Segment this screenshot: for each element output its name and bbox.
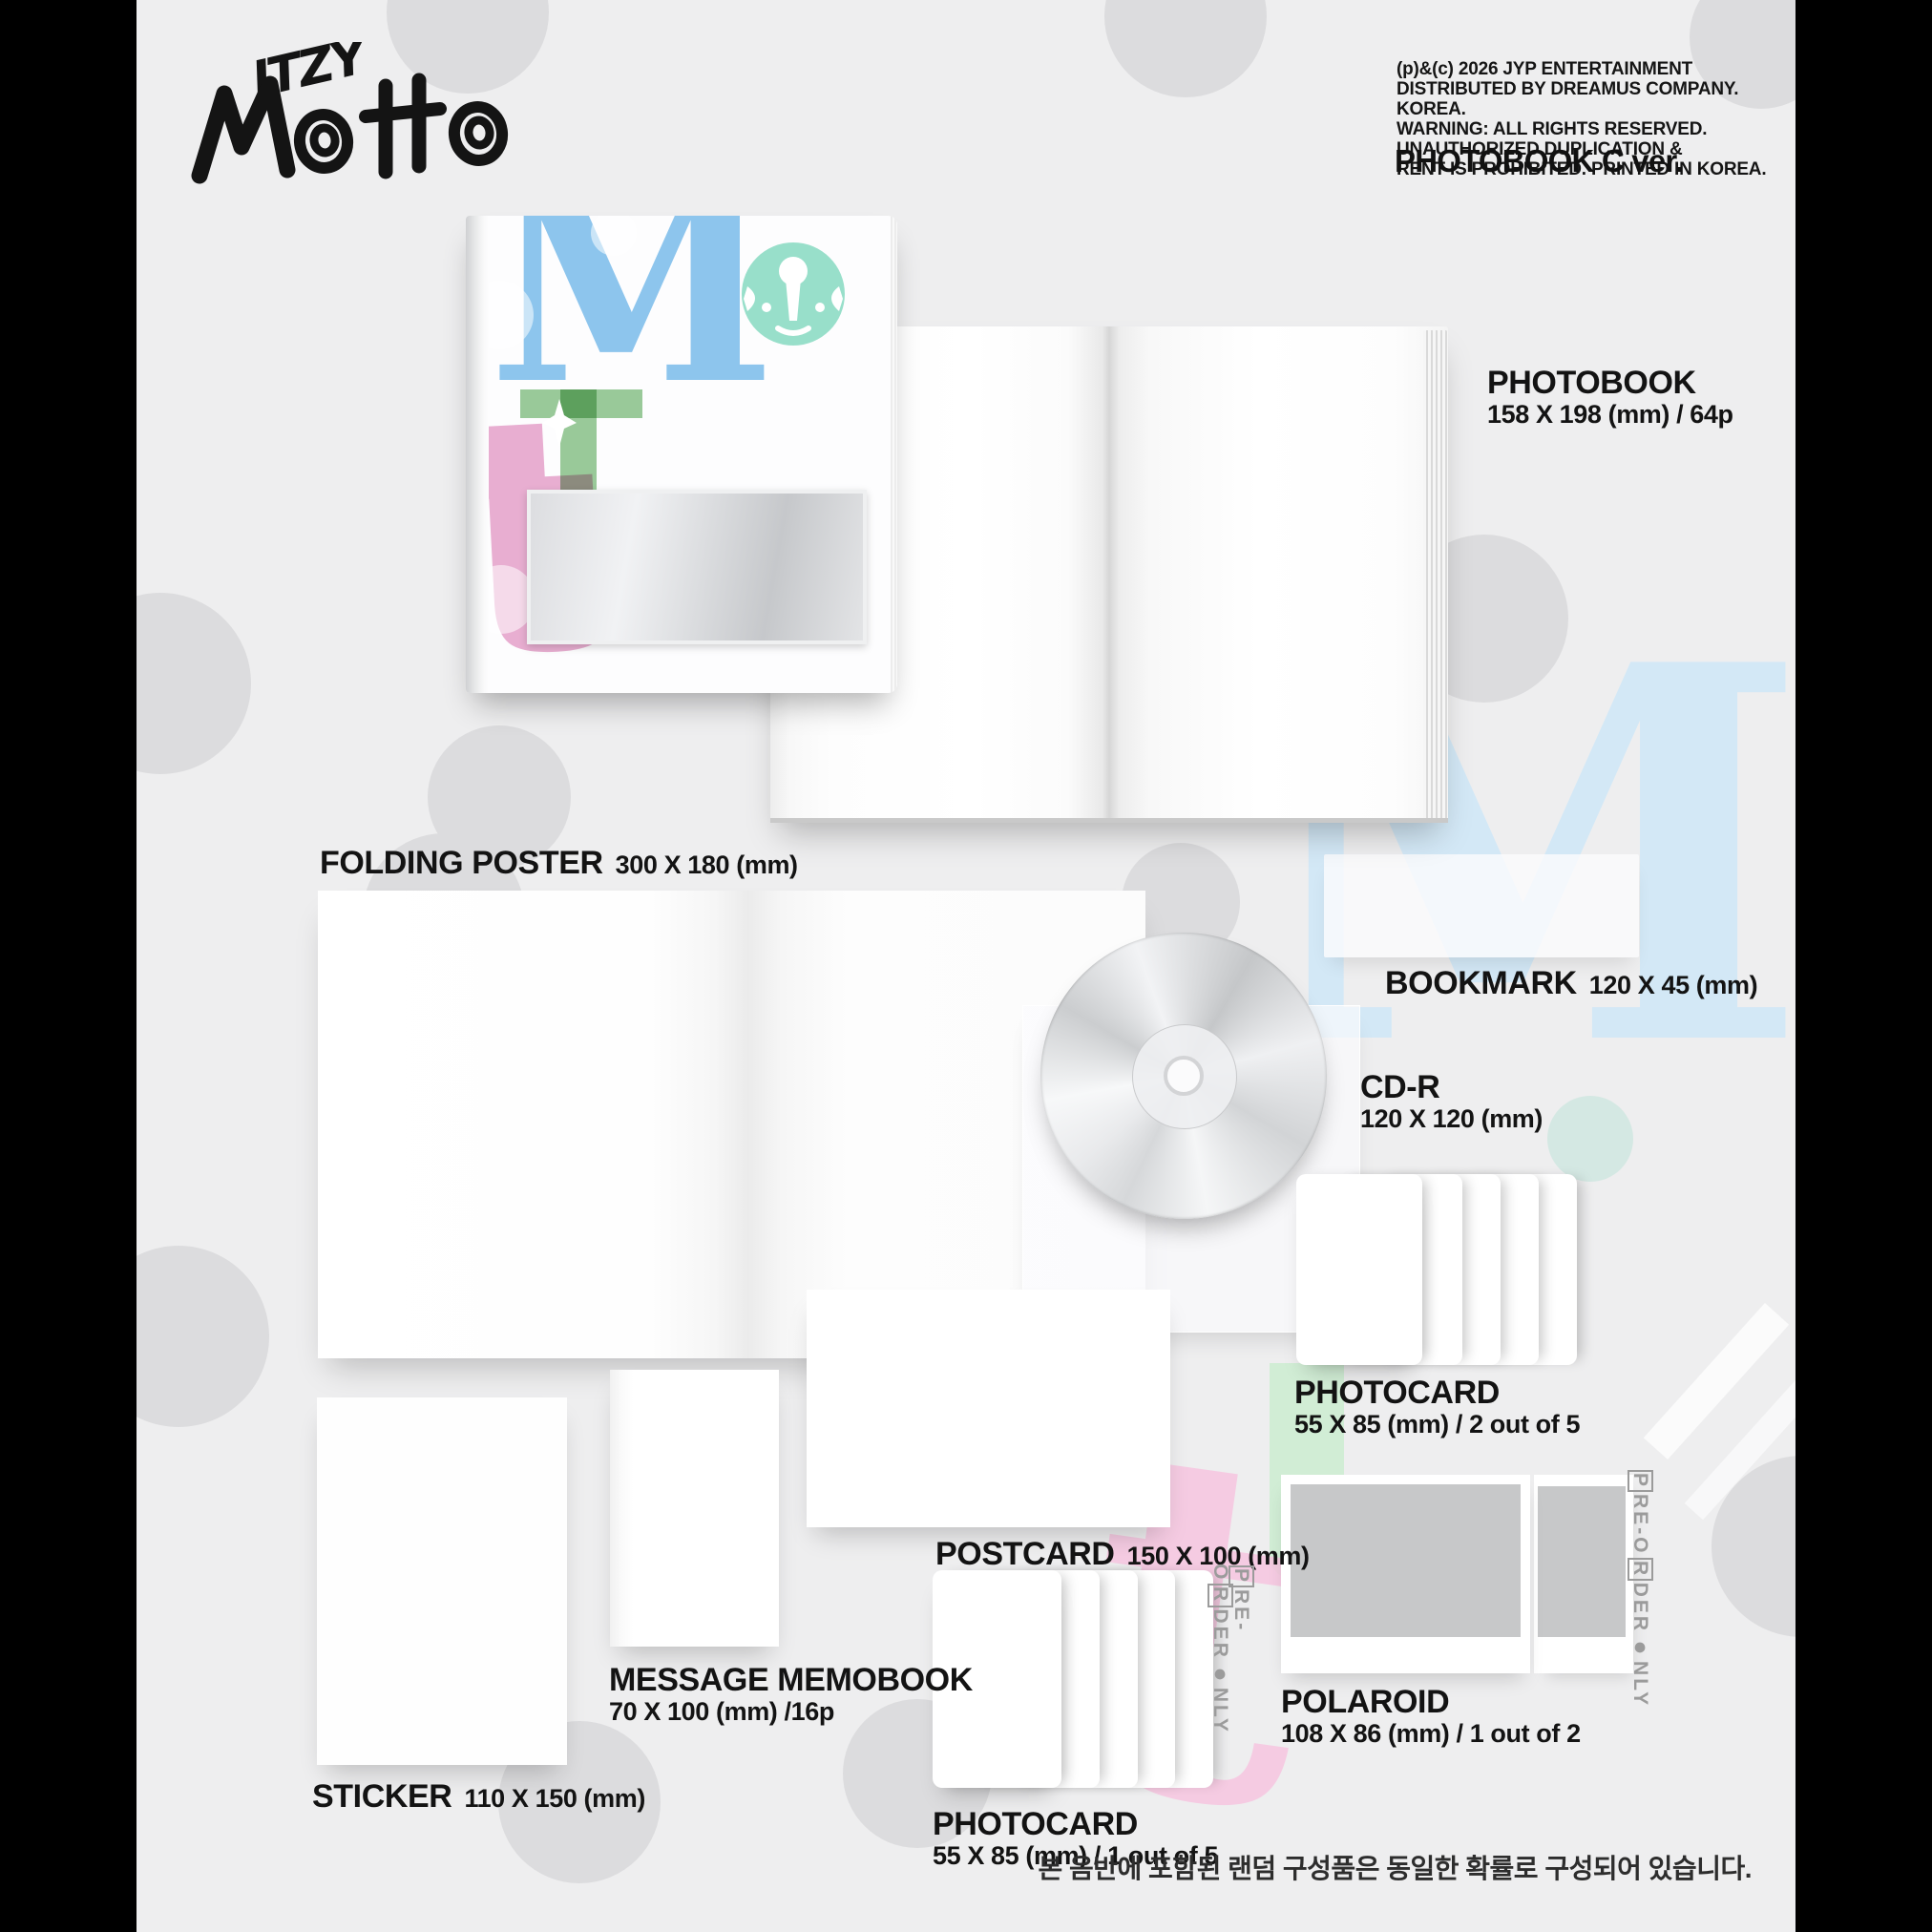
photocard-b-title: PHOTOCARD: [933, 1807, 1218, 1841]
bookmark-title: BOOKMARK: [1385, 966, 1577, 1000]
bg-dot: [1104, 0, 1267, 97]
polaroid-mockup-back: [1534, 1475, 1633, 1673]
cover-teal-ornament: [738, 239, 849, 349]
cover-star-icon: [542, 399, 577, 447]
book-spine: [466, 216, 489, 693]
memobook-dims: 70 X 100 (mm) /16p: [609, 1697, 973, 1727]
album-detail-sheet: M t ITZY (p)&(c) 2026 JYP ENTERTAINMENT …: [136, 0, 1795, 1932]
motto-logo: [199, 80, 506, 176]
bookmark-label: BOOKMARK 120 X 45 (mm): [1385, 966, 1757, 1000]
cdr-title: CD-R: [1360, 1070, 1543, 1104]
bookmark-dims: 120 X 45 (mm): [1589, 971, 1757, 1000]
polaroid-title: POLAROID: [1281, 1685, 1581, 1719]
postcard-title: POSTCARD: [935, 1537, 1115, 1571]
polaroid-label: POLAROID 108 X 86 (mm) / 1 out of 2: [1281, 1685, 1581, 1749]
folding-poster-title: FOLDING POSTER: [320, 846, 603, 880]
photobook-dims: 158 X 198 (mm) / 64p: [1487, 400, 1733, 430]
preorder-only-badge: PRE-ORDER●NLY: [1627, 1468, 1651, 1716]
itzy-motto-logo: ITZY: [190, 42, 514, 190]
memobook-label: MESSAGE MEMOBOOK 70 X 100 (mm) /16p: [609, 1663, 973, 1727]
folding-poster-label: FOLDING POSTER 300 X 180 (mm): [320, 846, 798, 880]
sticker-dims: 110 X 150 (mm): [464, 1784, 645, 1814]
random-item-footnote: 본 음반에 포함된 랜덤 구성품은 동일한 확률로 구성되어 있습니다.: [1038, 1848, 1752, 1886]
folding-poster-dims: 300 X 180 (mm): [616, 850, 798, 880]
cdr-label: CD-R 120 X 120 (mm): [1360, 1070, 1543, 1134]
bookmark-mockup: [1324, 854, 1639, 957]
version-label: PHOTOBOOK C ver.: [1395, 143, 1683, 179]
bg-dot: [136, 1246, 269, 1427]
photobook-title: PHOTOBOOK: [1487, 366, 1733, 400]
bg-art-mint-circle: [1547, 1096, 1633, 1182]
memobook-title: MESSAGE MEMOBOOK: [609, 1663, 973, 1697]
page-bottom-edge: [770, 818, 1448, 823]
sticker-title: STICKER: [312, 1779, 451, 1814]
polaroid-photo: [1538, 1486, 1626, 1637]
photocard-a-label: PHOTOCARD 55 X 85 (mm) / 2 out of 5: [1294, 1375, 1580, 1439]
folding-poster-mockup: [318, 891, 1145, 1358]
cd-center-hole: [1164, 1056, 1204, 1096]
photocard-a-dims: 55 X 85 (mm) / 2 out of 5: [1294, 1410, 1580, 1439]
polaroid-photo: [1291, 1484, 1521, 1637]
photobook-cover-mockup: G M t: [466, 216, 897, 693]
photocard-front: [1296, 1174, 1422, 1365]
postcard-mockup: [807, 1290, 1170, 1527]
page-stack: [1423, 330, 1448, 820]
cdr-dims: 120 X 120 (mm): [1360, 1104, 1543, 1134]
bg-dot: [136, 593, 251, 774]
polaroid-mockup-front: [1281, 1475, 1530, 1673]
message-memobook-mockup: [610, 1370, 779, 1647]
preorder-only-badge: PRE-ORDER●NLY: [1207, 1564, 1251, 1802]
sticker-label: STICKER 110 X 150 (mm): [312, 1779, 645, 1814]
cd-disc-mockup: [1040, 933, 1327, 1219]
sticker-mockup: [317, 1397, 567, 1765]
book-fore-edge: [891, 216, 897, 693]
cover-title-placeholder: [527, 490, 867, 644]
photobook-label: PHOTOBOOK 158 X 198 (mm) / 64p: [1487, 366, 1733, 430]
polaroid-dims: 108 X 86 (mm) / 1 out of 2: [1281, 1719, 1581, 1749]
photocard-a-title: PHOTOCARD: [1294, 1375, 1580, 1410]
